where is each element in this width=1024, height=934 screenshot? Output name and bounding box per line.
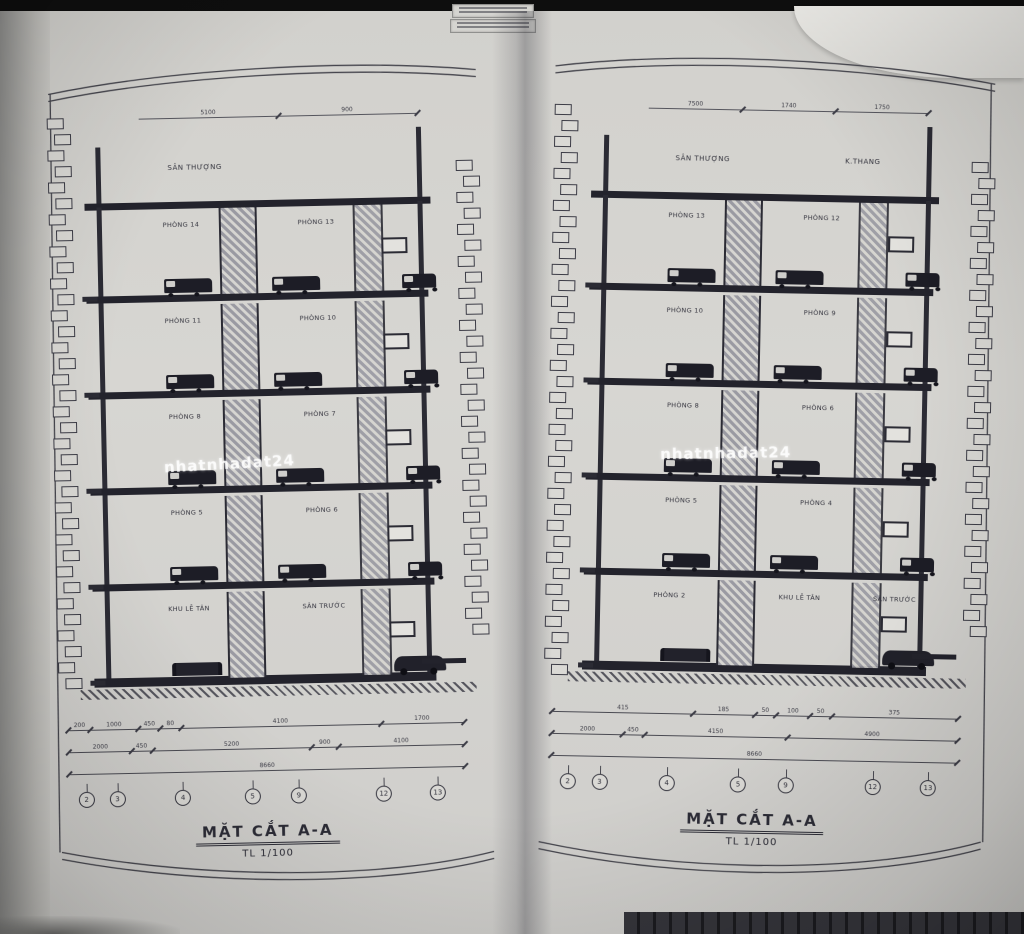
ladder-rung [59,390,76,401]
bed-icon [166,374,214,389]
dim-value: 50 [817,708,825,715]
sofa-icon [172,662,222,676]
dim-value: 450 [627,726,639,733]
ladder-rung [550,328,567,339]
bed-icon [272,276,320,291]
exterior-wall-left [103,495,110,591]
ladder-rung [553,536,570,547]
dim-value: 8660 [747,751,762,758]
ladder-rung [970,626,987,637]
exterior-wall-left [101,399,108,495]
stair-core-hatch [716,580,756,666]
ladder-rung [466,303,483,314]
ladder-rung [551,296,568,307]
ladder-rung [561,152,578,163]
dim-segment: 4150 [644,723,788,738]
floor-row: PHÒNG 13PHÒNG 12 [605,195,927,296]
bed-icon [900,558,934,573]
dim-value: 100 [787,707,799,714]
room-label: PHÒNG 6 [306,507,338,515]
ladder-rung [465,608,482,619]
stair-core-hatch [221,303,261,390]
dim-value: 4900 [864,731,879,738]
dim-segment: 375 [831,704,957,718]
dim-value: 80 [166,720,174,727]
room-label: PHÒNG 2 [653,592,685,600]
ladder-rung [61,454,78,465]
floor-row: KHU LỄ TÂNSÂN TRƯỚC [109,585,429,688]
dim-value: 5200 [224,741,239,748]
ladder-rung [978,210,995,221]
balcony-nub [585,282,600,287]
dim-value: 1750 [874,104,889,111]
window-icon [383,333,409,350]
dim-segment: 5100 [138,106,277,119]
floor-row: PHÒNG 11PHÒNG 10 [103,297,423,400]
grid-bubble: 2 [78,792,94,808]
ladder-rung [968,354,985,365]
ladder-rung [458,288,475,299]
ladder-rung [49,214,66,225]
room-label: PHÒNG 14 [163,221,200,229]
stair-core-hatch [361,588,393,675]
exterior-wall-left [601,195,608,290]
bed-icon [775,270,823,285]
ladder-rung [551,664,568,675]
drawing-scale-label: TL 1/100 [242,848,294,860]
ladder-rung [48,182,65,193]
ladder-rung [54,134,71,145]
exterior-wall-left [599,290,606,385]
ladder-rung [972,530,989,541]
dim-segment: 50 [810,704,832,716]
roof-terrace-label: SÂN THƯỢNG [676,154,731,163]
dim-segment: 5200 [152,735,311,750]
floor-row: PHÒNG 5PHÒNG 4 [600,480,922,581]
ladder-rung [963,610,980,621]
balcony-nub [578,662,593,667]
balcony-nub [86,489,101,494]
dim-segment: 4100 [338,732,463,747]
window-icon [884,426,910,442]
grid-bubble: 5 [244,788,260,804]
ladder-rung [58,662,75,673]
shadow-bottom-left [0,916,180,934]
room-label: PHÒNG 10 [667,307,704,315]
stair-core-hatch [722,295,762,381]
stair-core-hatch [720,390,760,476]
room-label: PHÒNG 8 [667,402,699,410]
stair-core-hatch [359,493,391,580]
ladder-rung [472,623,489,634]
grid-bubble: 4 [659,775,675,791]
bed-icon [274,372,322,387]
floor-row: PHÒNG 5PHÒNG 6 [107,489,427,592]
ladder-rung [555,472,572,483]
grid-bubble: 12 [376,786,392,802]
dim-segment: 185 [692,702,754,715]
grid-bubble: 2 [560,773,576,789]
front-yard-slab [912,654,956,660]
sheet-right: 750017401750SÂN THƯỢNGK.THANGPHÒNG 13PHÒ… [532,14,1005,909]
ladder-rung [561,120,578,131]
stair-core-hatch [355,301,387,388]
ladder-rung [553,168,570,179]
ladder-rung [47,150,64,161]
dim-value: 415 [617,704,629,711]
ladder-rung [52,374,69,385]
bed-icon [276,468,324,483]
floor-row: PHÒNG 2KHU LỄ TÂNSÂN TRƯỚC [598,575,920,676]
window-icon [886,331,912,347]
stair-core-hatch [718,485,758,571]
ladder-rung [465,271,482,282]
dim-value: 7500 [688,100,703,107]
ladder-rung [552,264,569,275]
balcony-nub [580,567,595,572]
dim-segment: 1000 [89,717,138,730]
ladder-rung [553,568,570,579]
drawing-title: MẶT CẮT A-A [196,821,340,847]
room-label: PHÒNG 8 [169,413,201,421]
dim-value: 4100 [273,718,288,725]
ladder-rung [461,416,478,427]
ladder-rung [65,646,82,657]
ladder-rung [464,576,481,587]
ladder-rung [460,384,477,395]
ladder-rung [966,450,983,461]
ladder-rung [973,466,990,477]
balcony-nub [583,377,598,382]
ladder-rung [977,242,994,253]
ladder-rung [976,306,993,317]
bed-icon [164,278,212,293]
ladder-rung [554,136,571,147]
room-label: PHÒNG 5 [665,497,697,505]
ladder-rung [967,418,984,429]
exterior-wall-left [105,591,112,687]
floor-row: PHÒNG 10PHÒNG 9 [603,290,925,391]
ladder-rung [464,208,481,219]
ladder-rung [552,600,569,611]
bed-icon [774,365,822,380]
bed-icon [902,463,936,478]
exterior-wall-left [598,385,605,480]
dim-value: 1700 [414,715,429,722]
ladder-rung [462,448,479,459]
dim-segment: 450 [131,739,152,751]
ladder-rung [463,512,480,523]
ladder-rung [59,358,76,369]
dim-segment: 80 [160,716,180,728]
balcony-nub [84,393,99,398]
ladder-rung [975,338,992,349]
room-label: PHÒNG 12 [803,215,840,223]
photo-of-drawing-set: 5100900SÂN THƯỢNGPHÒNG 14PHÒNG 13PHÒNG 1… [0,0,1024,934]
ladder-rung [559,248,576,259]
dim-segment: 100 [776,703,810,716]
ladder-rung [556,408,573,419]
window-icon [888,236,914,252]
dim-value: 375 [889,709,901,716]
bed-icon [408,561,442,576]
bed-icon [170,566,218,581]
window-icon [387,525,413,542]
stair-core-hatch [353,205,385,292]
bed-icon [406,465,440,480]
dim-segment: 450 [138,716,160,728]
ladder-rung [971,194,988,205]
ladder-rung [551,632,568,643]
ladder-rung [57,294,74,305]
ladder-rung [56,566,73,577]
ladder-rung [457,224,474,235]
ladder-rung [972,162,989,173]
exterior-wall-left [594,575,601,670]
dim-value: 5100 [200,109,215,116]
ladder-rung [978,178,995,189]
ladder-rung [550,360,567,371]
room-label: KHU LỄ TÂN [779,594,821,602]
bed-icon [905,273,939,288]
balcony-nub [82,297,97,302]
ladder-rung [469,463,486,474]
ladder-rung [970,258,987,269]
ladder-rung [57,598,74,609]
stair-core-hatch [223,399,263,486]
room-label: PHÒNG 5 [171,509,203,517]
room-label: PHÒNG 11 [165,317,202,325]
ladder-rung [53,406,70,417]
ladder-rung [464,240,481,251]
dim-segment: 1750 [835,101,929,113]
grid-bubble: 9 [777,777,793,793]
roof-terrace-label: K.THANG [845,157,880,166]
window-icon [385,429,411,446]
ladder-rung [460,352,477,363]
ladder-rung [965,482,982,493]
ladder-rung [51,310,68,321]
room-label: KHU LỄ TÂN [168,605,210,613]
front-yard-slab [422,658,466,664]
watermark: nhatnhadat24 [660,443,791,463]
dim-segment: 1740 [742,99,836,111]
dim-value: 4150 [708,728,723,735]
ladder-rung [58,326,75,337]
ladder-rung [967,386,984,397]
dim-segment: 900 [311,735,339,748]
exterior-wall-left [596,480,603,575]
bed-icon [404,369,438,384]
dim-segment: 4900 [787,725,957,740]
ladder-rung [559,216,576,227]
ladder-rung [968,322,985,333]
balcony-nub [88,584,103,589]
ladder-rung [64,614,81,625]
ladder-rung [558,312,575,323]
ladder-rung [54,470,71,481]
ladder-rung [55,198,72,209]
dim-value: 185 [718,706,730,713]
ladder-rung [972,498,989,509]
exterior-wall-left [97,207,104,303]
ladder-rung [467,367,484,378]
ladder-rung [970,594,987,605]
ladder-rung [63,550,80,561]
ladder-rung [974,402,991,413]
dim-value: 450 [143,720,155,727]
dim-segment: 900 [277,103,416,116]
ladder-rung [456,192,473,203]
dim-value: 900 [319,739,331,746]
ladder-rung [969,290,986,301]
balcony-nub [582,472,597,477]
dim-segment: 2000 [70,739,131,752]
ladder-rung [971,562,988,573]
ladder-rung [560,184,577,195]
ladder-rung [463,176,480,187]
room-label: PHÒNG 7 [304,411,336,419]
stair-core-hatch [225,495,265,582]
ladder-rung [468,399,485,410]
stair-core-hatch [723,200,763,286]
ladder-rung [964,546,981,557]
ladder-rung [555,104,572,115]
dim-segment: 200 [69,718,89,730]
ladder-rung [552,232,569,243]
ladder-rung [55,166,72,177]
balcony-nub [90,680,105,685]
ladder-rung [51,342,68,353]
ladder-rung [61,486,78,497]
dim-segment: 7500 [649,98,743,110]
bed-icon [402,273,436,288]
ladder-rung [462,480,479,491]
ladder-rung [970,226,987,237]
ladder-rung [63,582,80,593]
ladder-rung [456,160,473,171]
ladder-rung [60,422,77,433]
window-icon [881,616,907,632]
floor-row: PHÒNG 14PHÒNG 13 [101,201,421,304]
exterior-wall-left [99,303,106,399]
stair-core-hatch [856,298,888,384]
ladder-rung [466,335,483,346]
ladder-rung [57,630,74,641]
stair-core-hatch [357,397,389,484]
bed-icon [667,268,715,283]
roof-terrace-label: SÂN THƯỢNG [167,163,222,172]
dim-value: 2000 [580,725,595,732]
ladder-rung [471,559,488,570]
ladder-rung [56,230,73,241]
room-label: PHÒNG 9 [804,310,836,318]
sheet-left: 5100900SÂN THƯỢNGPHÒNG 14PHÒNG 13PHÒNG 1… [37,21,501,914]
bed-icon [772,460,820,475]
ladder-rung [964,578,981,589]
ladder-rung [459,320,476,331]
dim-value: 450 [136,743,148,750]
stair-core-hatch [852,488,884,574]
ladder-rung [49,246,66,257]
ladder-rung [50,278,67,289]
dim-value: 900 [341,106,353,113]
room-label: PHÒNG 13 [298,219,335,227]
dim-segment: 1700 [380,710,463,724]
ladder-rung [472,591,489,602]
room-label: SÂN TRƯỚC [873,596,916,604]
ladder-rung [470,495,487,506]
ladder-rung [553,200,570,211]
ladder-rung [554,504,571,515]
ladder-rung [555,440,572,451]
dim-segment: 50 [754,703,776,715]
floor-row: PHÒNG 8PHÒNG 6 [602,385,924,486]
room-label: PHÒNG 6 [802,405,834,413]
room-label: PHÒNG 13 [668,212,705,220]
room-label: PHÒNG 4 [800,500,832,508]
dim-value: 4100 [393,737,408,744]
drawing-title: MẶT CẮT A-A [680,809,824,835]
sofa-icon [660,648,710,662]
bed-icon [278,564,326,579]
dim-value: 8660 [260,762,275,769]
book-spine-shadow [492,11,552,934]
bed-icon [770,555,818,570]
ladder-rung [556,376,573,387]
dim-value: 2000 [93,743,108,750]
dim-value: 1000 [106,721,121,728]
stair-core-hatch [227,591,267,678]
dim-segment: 2000 [553,721,622,734]
ladder-rung [55,502,72,513]
drawing-scale-label: TL 1/100 [726,836,778,848]
grid-bubble: 12 [864,779,880,795]
ladder-rung [53,438,70,449]
dim-segment: 415 [553,699,692,714]
ladder-rung [973,434,990,445]
dim-segment: 450 [622,722,644,734]
grid-bubble: 3 [591,774,607,790]
ladder-rung [57,262,74,273]
window-icon [883,521,909,537]
dim-value: 50 [761,707,769,714]
ladder-rung [965,514,982,525]
room-label: SÂN TRƯỚC [302,602,345,610]
stair-core-hatch [854,393,886,479]
ladder-rung [65,678,82,689]
ladder-rung [470,527,487,538]
ladder-rung [468,431,485,442]
floor-row: PHÒNG 8PHÒNG 7 [105,393,425,496]
dim-value: 1740 [781,102,796,109]
ladder-rung [976,274,993,285]
ladder-rung [557,344,574,355]
room-label: PHÒNG 10 [300,315,337,323]
stair-core-hatch [857,203,889,289]
ladder-rung [55,534,72,545]
bed-icon [904,368,938,383]
window-icon [389,621,415,638]
ladder-rung [458,256,475,267]
grid-bubble: 3 [109,791,125,807]
dim-value: 200 [74,722,86,729]
bed-icon [666,363,714,378]
ladder-rung [62,518,79,529]
ladder-rung [975,370,992,381]
keyboard-edge [624,912,1024,934]
window-icon [381,237,407,254]
